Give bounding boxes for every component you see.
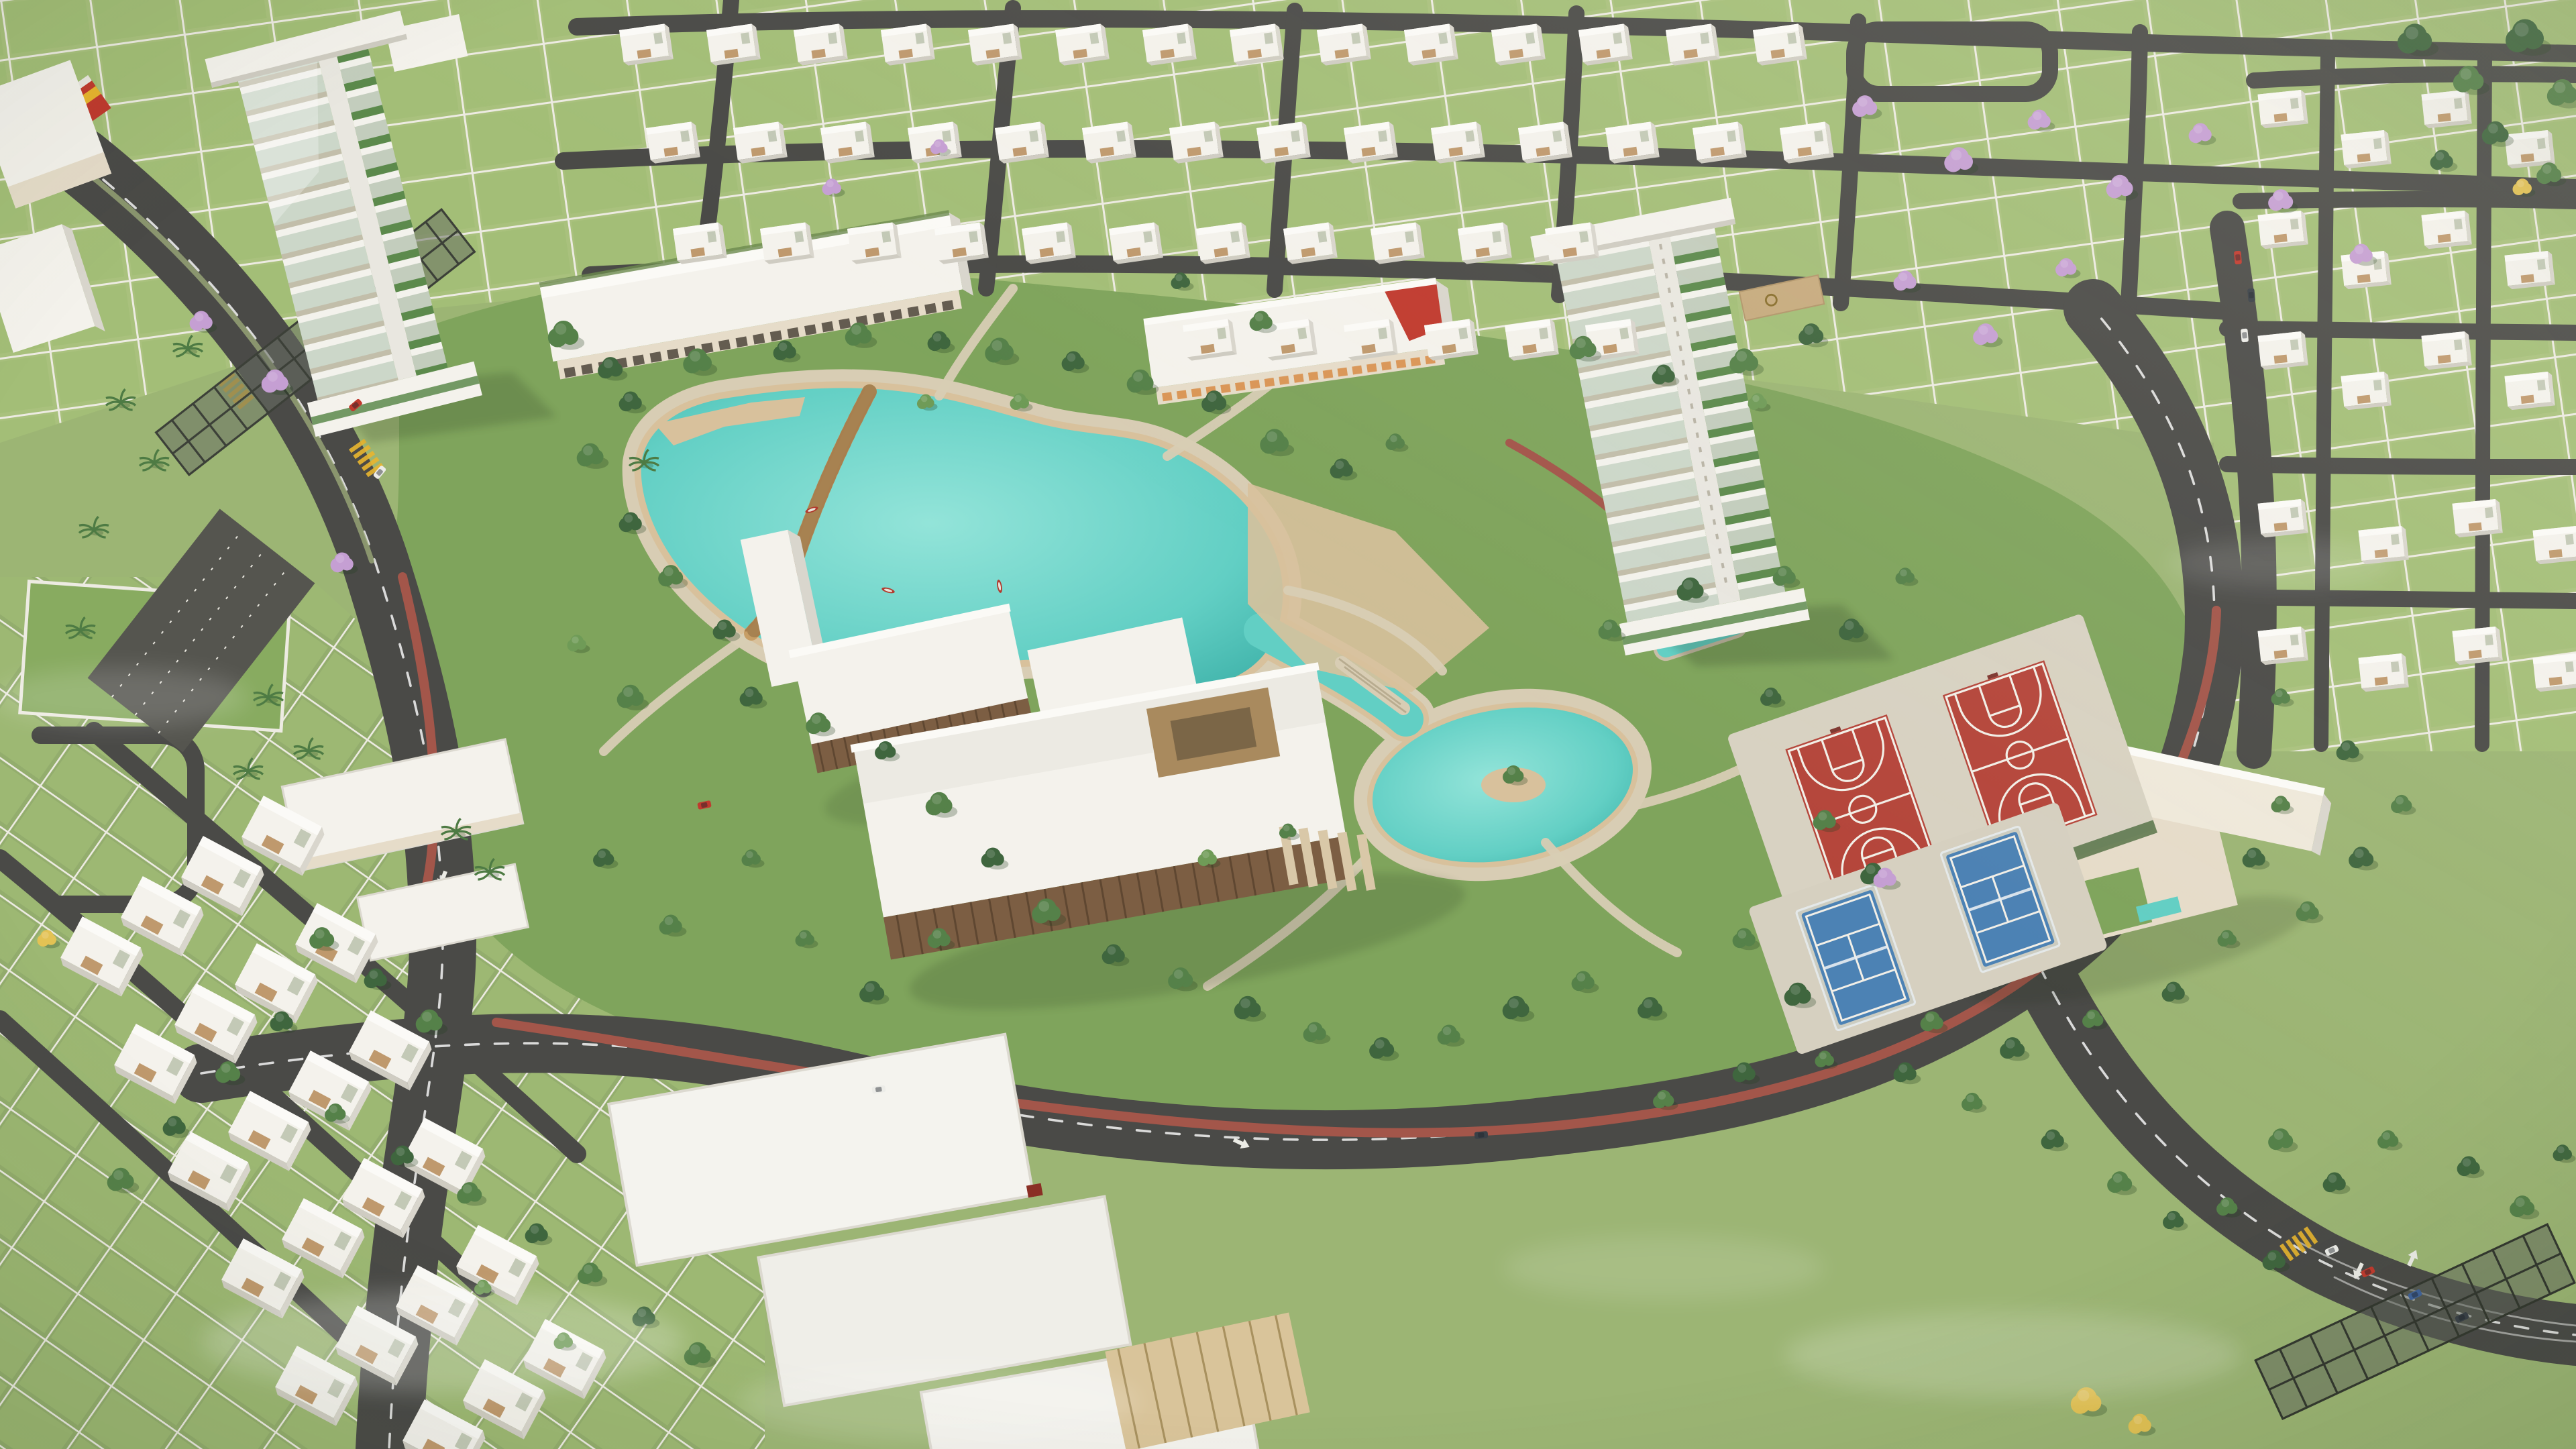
vignette: [0, 0, 2576, 1449]
aerial-masterplan-render: [0, 0, 2576, 1449]
